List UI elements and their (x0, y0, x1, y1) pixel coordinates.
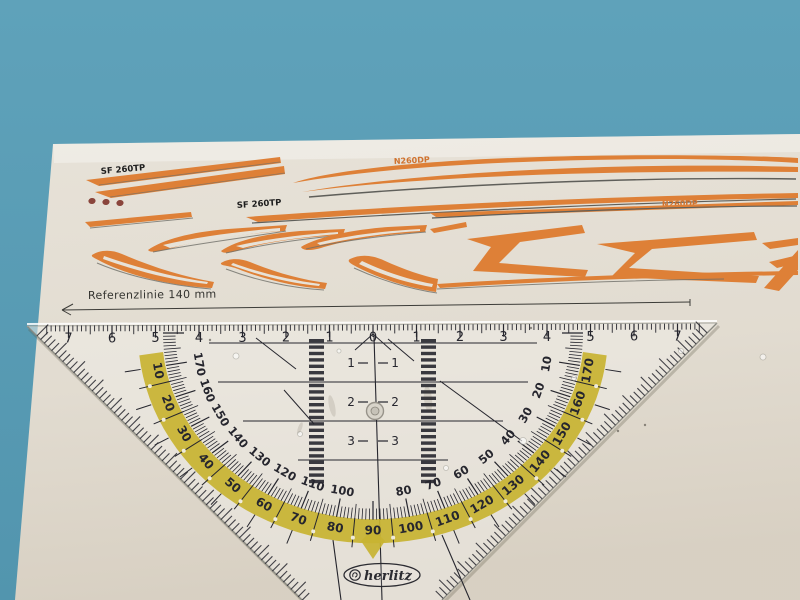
speck (617, 430, 619, 432)
band-dot (391, 536, 395, 540)
speck (644, 424, 646, 426)
speck (530, 327, 532, 329)
hang-hole-inner (371, 407, 379, 415)
protractor-inner-label: 80 (394, 482, 412, 499)
cm-label: 7 (64, 331, 72, 346)
band-stripe (309, 377, 324, 380)
band-dot (273, 517, 277, 521)
band-dot (431, 529, 435, 533)
band-stripe (421, 441, 436, 444)
band-stripe (309, 422, 324, 425)
band-stripe (309, 339, 324, 342)
parallel-guide-label: 2 (347, 395, 355, 409)
band-stripe (309, 384, 324, 387)
photo-scene: SF 260TP N260DP SF 260TP N260DP (0, 0, 800, 600)
band-stripe (309, 345, 324, 348)
cm-label: 5 (151, 331, 159, 346)
band-stripe (309, 352, 324, 355)
band-dot (534, 476, 538, 480)
cm-label: 5 (586, 330, 594, 345)
protractor-outer-label: 10 (150, 361, 167, 380)
band-stripe (309, 448, 324, 451)
band-stripe (309, 409, 324, 412)
water-droplet (444, 466, 449, 471)
speck (209, 339, 211, 341)
band-dot (148, 384, 152, 388)
band-dot (503, 499, 507, 503)
herlitz-logo: herlitz (344, 564, 420, 587)
water-droplet (520, 438, 527, 445)
band-stripe (309, 454, 324, 457)
cm-label: 6 (108, 331, 116, 346)
water-droplet (233, 353, 239, 359)
band-stripe (309, 467, 324, 470)
band-stripe (309, 358, 324, 361)
band-stripe (421, 461, 436, 464)
cm-label: 6 (630, 330, 638, 345)
cm-label: 3 (238, 331, 246, 346)
band-stripe (309, 416, 324, 419)
band-stripe (421, 454, 436, 457)
cm-labels: 765432101234567 (64, 330, 681, 347)
band-dot (311, 529, 315, 533)
decal-text-n260dp-top: N260DP (394, 155, 430, 166)
band-dot (580, 418, 584, 422)
band-stripe (421, 365, 436, 368)
protractor-inner-label: 10 (538, 355, 555, 373)
band-dot (162, 418, 166, 422)
band-stripe (421, 416, 436, 419)
band-stripe (421, 467, 436, 470)
band-stripe (421, 435, 436, 438)
band-dot (560, 449, 564, 453)
water-droplet (572, 376, 577, 381)
parallel-guide-label: 1 (347, 356, 355, 370)
cm-label: 7 (673, 330, 681, 345)
band-stripe (421, 384, 436, 387)
band-stripe (421, 339, 436, 342)
band-dot (594, 384, 598, 388)
brand-logo-text: herlitz (364, 569, 412, 584)
water-droplet (679, 349, 684, 354)
band-dot (351, 536, 355, 540)
cm-label: 4 (543, 330, 551, 345)
reference-line-label: Referenzlinie 140 mm (88, 288, 217, 302)
parallel-guide-label: 3 (391, 434, 399, 448)
parallel-guide-label: 1 (391, 356, 399, 370)
band-stripe (421, 371, 436, 374)
band-stripe (421, 345, 436, 348)
band-stripe (421, 377, 436, 380)
band-stripe (421, 429, 436, 432)
parallel-guide-label: 2 (391, 395, 399, 409)
parallel-guide-label: 3 (347, 434, 355, 448)
band-stripe (421, 448, 436, 451)
protractor-outer-label: 80 (326, 519, 345, 536)
water-droplet (337, 349, 341, 353)
band-stripe (309, 403, 324, 406)
band-stripe (421, 352, 436, 355)
band-stripe (309, 435, 324, 438)
band-dot (208, 476, 212, 480)
band-dot (239, 499, 243, 503)
center-hole (367, 403, 384, 420)
band-stripe (421, 358, 436, 361)
band-dot (469, 517, 473, 521)
band-stripe (309, 371, 324, 374)
band-stripe (309, 390, 324, 393)
band-dot (182, 449, 186, 453)
cm-label: 4 (195, 331, 203, 346)
protractor-outer-label: 90 (365, 523, 382, 537)
band-stripe (309, 365, 324, 368)
band-stripe (309, 397, 324, 400)
band-stripe (309, 441, 324, 444)
band-stripe (421, 422, 436, 425)
band-stripe (309, 461, 324, 464)
band-stripe (309, 429, 324, 432)
water-droplet (760, 354, 766, 360)
